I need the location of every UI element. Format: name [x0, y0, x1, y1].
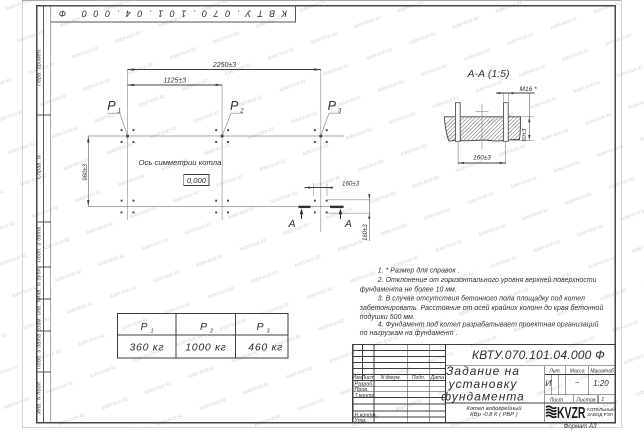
svg-text:2250±3: 2250±3 [212, 62, 236, 69]
svg-text:Инв. N дубл.: Инв. N дубл. [37, 266, 43, 299]
svg-text:160±3: 160±3 [363, 224, 369, 241]
svg-text:2: 2 [239, 109, 244, 115]
svg-text:N докум.: N докум. [381, 375, 401, 381]
svg-text:Подп. и дата: Подп. и дата [37, 227, 43, 262]
svg-text:50±3: 50±3 [522, 128, 528, 142]
svg-text:КОТЕЛЬНЫЙ: КОТЕЛЬНЫЙ [587, 405, 615, 412]
svg-text:забетонировать. Расстояние от: забетонировать. Расстояние от осей крайн… [359, 304, 604, 312]
svg-text:4. Фундамент под котел разраб: 4. Фундамент под котел разрабатывает про… [378, 320, 599, 328]
svg-text:960±3: 960±3 [83, 163, 89, 180]
svg-text:Формат А3: Формат А3 [564, 424, 597, 430]
svg-text:P: P [328, 99, 337, 113]
svg-text:0,000: 0,000 [187, 176, 207, 185]
svg-text:P: P [141, 321, 148, 333]
svg-text:Ось симметрии котла: Ось симметрии котла [139, 158, 223, 167]
svg-text:2. Отклонение от горизонтальн: 2. Отклонение от горизонтального уровня … [377, 276, 597, 284]
svg-text:Лист: Лист [549, 397, 564, 403]
svg-text:М16 *: М16 * [520, 86, 538, 93]
svg-text:160±3: 160±3 [473, 155, 491, 162]
svg-text:P: P [107, 99, 116, 113]
svg-text:Подп. и дата: Подп. и дата [37, 334, 43, 369]
svg-text:Справ. N: Справ. N [37, 155, 43, 179]
svg-text:А: А [288, 218, 296, 230]
svg-text:2: 2 [209, 329, 213, 335]
svg-text:подушки 500 мм.: подушки 500 мм. [360, 313, 415, 321]
svg-text:360 кг: 360 кг [130, 342, 165, 354]
svg-text:3. В случае отсутствия бетонн: 3. В случае отсутствия бетонного пола пл… [378, 295, 585, 303]
svg-text:P: P [257, 321, 264, 333]
svg-text:1125±3: 1125±3 [163, 77, 186, 84]
svg-text:фундамента не более 10 мм.: фундамента не более 10 мм. [360, 286, 457, 294]
svg-text:1:20: 1:20 [593, 379, 609, 388]
svg-text:460 кг: 460 кг [248, 342, 283, 354]
svg-text:1: 1 [118, 109, 121, 115]
svg-text:А: А [344, 218, 352, 230]
svg-text:1000 кг: 1000 кг [185, 342, 226, 354]
svg-text:1: 1 [151, 329, 154, 335]
svg-text:Подп.: Подп. [412, 375, 425, 381]
svg-text:KVZR: KVZR [557, 405, 586, 422]
svg-text:Инв. N подл.: Инв. N подл. [37, 380, 43, 413]
svg-text:P: P [230, 99, 239, 113]
svg-text:Дата: Дата [430, 375, 444, 381]
svg-text:Утв.: Утв. [355, 418, 367, 424]
svg-text:Лит.: Лит. [548, 369, 561, 375]
svg-text:Взам. инв. N: Взам. инв. N [37, 298, 43, 331]
svg-text:А-А (1:5): А-А (1:5) [467, 68, 510, 80]
svg-text:1. * Размер для справок .: 1. * Размер для справок . [378, 266, 460, 274]
svg-text:И: И [545, 378, 552, 388]
svg-text:1: 1 [601, 397, 604, 403]
svg-text:КВр -0,8 К ( РВР ): КВр -0,8 К ( РВР ) [470, 412, 517, 418]
svg-text:Перв. примен.: Перв. примен. [37, 48, 43, 86]
svg-text:–: – [574, 380, 579, 387]
svg-text:Масштаб: Масштаб [590, 369, 614, 375]
svg-text:Лист: Лист [361, 375, 375, 381]
svg-text:Листов: Листов [575, 397, 596, 403]
svg-text:Масса: Масса [570, 369, 585, 375]
svg-text:фундамента: фундамента [441, 390, 525, 404]
svg-text:P: P [200, 321, 207, 333]
svg-text:по нагрузкам на фундамент .: по нагрузкам на фундамент . [360, 329, 458, 337]
svg-text:ЗАВОД РЭП: ЗАВОД РЭП [587, 412, 613, 417]
svg-text:160±3: 160±3 [342, 180, 360, 187]
svg-text:Т.контр.: Т.контр. [355, 393, 376, 399]
svg-text:Задание на: Задание на [446, 364, 520, 378]
svg-text:КВТУ.070.101.04.000 Ф: КВТУ.070.101.04.000 Ф [472, 348, 605, 362]
